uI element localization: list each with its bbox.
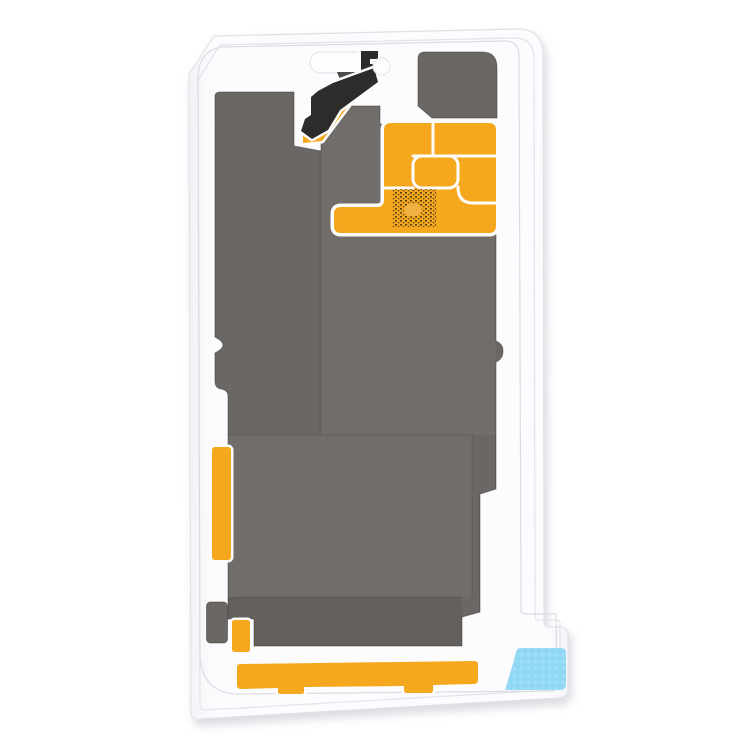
screenshot-root bbox=[0, 0, 750, 750]
camera-cutout-circle bbox=[373, 58, 390, 75]
product-photo-canvas bbox=[0, 0, 750, 750]
kapton-strip-bottom-left bbox=[232, 620, 250, 652]
graphite-island-top-right bbox=[418, 52, 497, 118]
earpiece-cutout-pill bbox=[310, 52, 367, 73]
graphite-layer-overlay-lower bbox=[228, 435, 472, 597]
graphite-bottom-band bbox=[228, 597, 462, 646]
kapton-strip-left bbox=[212, 447, 231, 560]
qr-code-patch bbox=[392, 189, 436, 227]
graphite-foot-bottom-left bbox=[207, 602, 228, 643]
